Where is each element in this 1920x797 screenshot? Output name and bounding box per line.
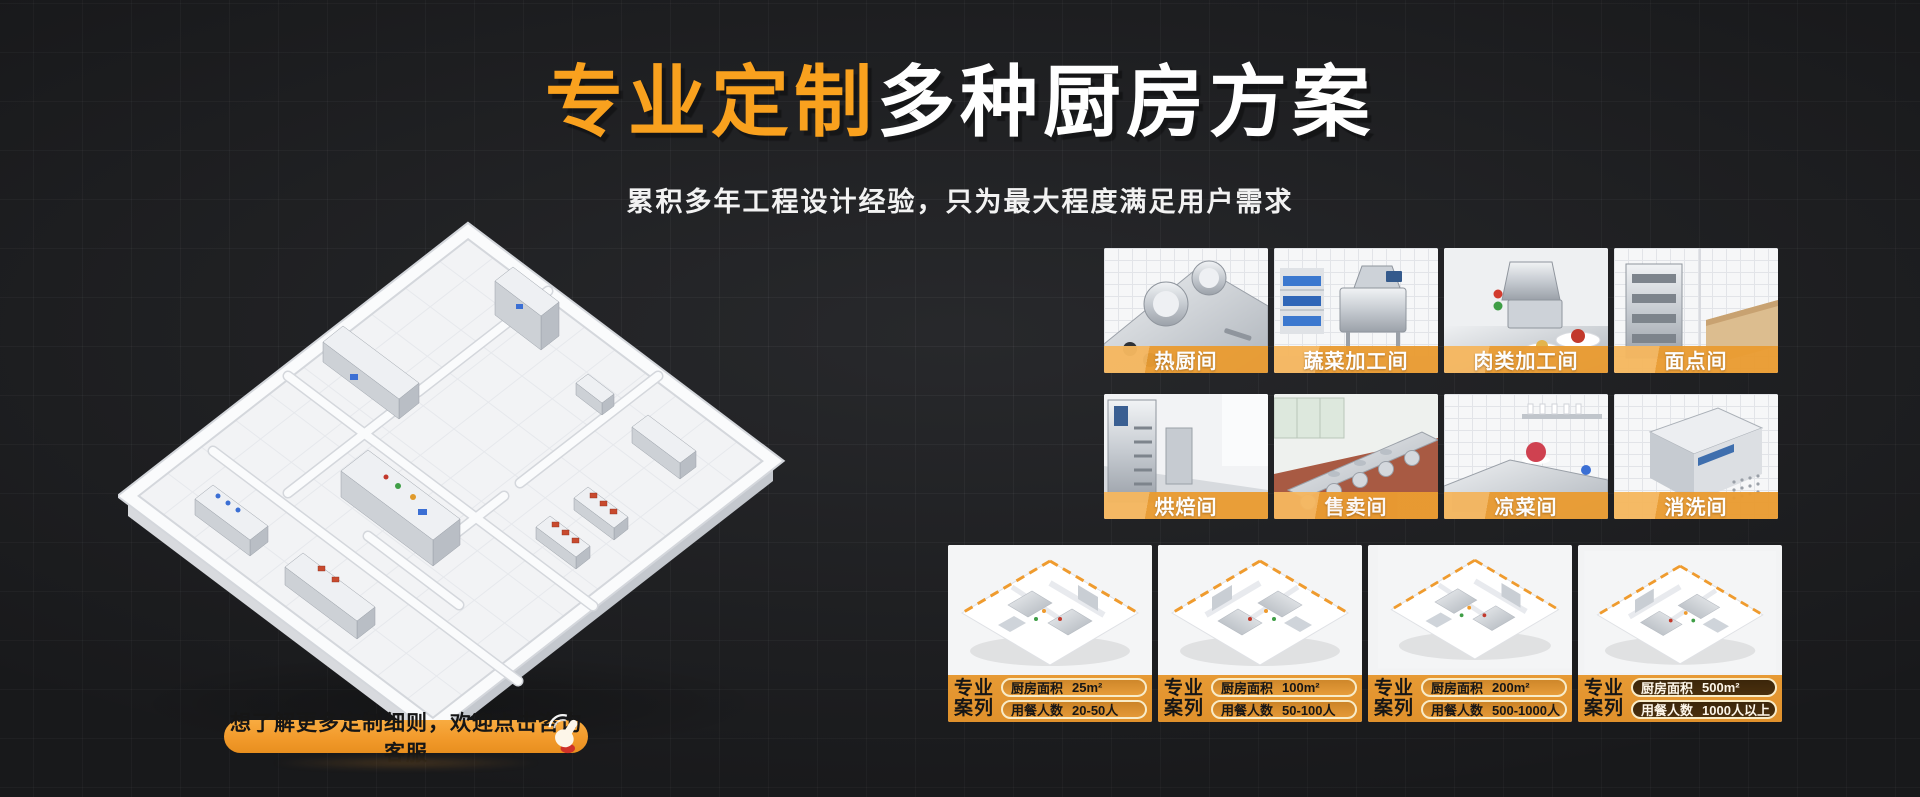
gallery-tile-label: 热厨间: [1104, 346, 1268, 373]
case-strip: 专业案列 厨房面积100m² 用餐人数50-100人: [1158, 675, 1362, 722]
case-area-pill: 厨房面积100m²: [1211, 678, 1357, 697]
case-badge: 专业案列: [954, 679, 994, 719]
click-hand-icon: [540, 710, 586, 756]
case-kitchen-render: [948, 545, 1152, 675]
case-strip: 专业案列 厨房面积200m² 用餐人数500-1000人: [1368, 675, 1572, 722]
case-badge: 专业案列: [1164, 679, 1204, 719]
page-title-rest: 多种厨房方案: [877, 58, 1375, 146]
case-diners-pill: 用餐人数500-1000人: [1421, 700, 1567, 719]
gallery-tile-label: 售卖间: [1274, 492, 1438, 519]
case-cards: 专业案列 厨房面积25m² 用餐人数20-50人 专业案列 厨房面积100m² …: [948, 545, 1782, 722]
case-diners-pill: 用餐人数50-100人: [1211, 700, 1357, 719]
gallery-tile-hot-kitchen[interactable]: 热厨间: [1104, 248, 1268, 373]
gallery-tile-label: 蔬菜加工间: [1274, 346, 1438, 373]
gallery-tile-sales-room[interactable]: 售卖间: [1274, 394, 1438, 519]
case-diners-pill: 用餐人数20-50人: [1001, 700, 1147, 719]
room-gallery: 热厨间 蔬菜加工间: [1104, 248, 1778, 519]
gallery-tile-dishwashing-room[interactable]: 消洗间: [1614, 394, 1778, 519]
case-area-pill: 厨房面积25m²: [1001, 678, 1147, 697]
case-card-200[interactable]: 专业案列 厨房面积200m² 用餐人数500-1000人: [1368, 545, 1572, 722]
gallery-tile-label: 面点间: [1614, 346, 1778, 373]
gallery-tile-baking-room[interactable]: 烘焙间: [1104, 394, 1268, 519]
case-badge: 专业案列: [1374, 679, 1414, 719]
consult-cta-button[interactable]: 想了解更多定制细则，欢迎点击咨询客服: [224, 720, 588, 753]
case-card-500[interactable]: 专业案列 厨房面积500m² 用餐人数1000人以上: [1578, 545, 1782, 722]
gallery-tile-label: 凉菜间: [1444, 492, 1608, 519]
case-card-25[interactable]: 专业案列 厨房面积25m² 用餐人数20-50人: [948, 545, 1152, 722]
page-title: 专业定制多种厨房方案: [0, 40, 1920, 152]
case-strip: 专业案列 厨房面积500m² 用餐人数1000人以上: [1578, 675, 1782, 722]
case-diners-pill: 用餐人数1000人以上: [1631, 700, 1777, 719]
consult-cta-label: 想了解更多定制细则，欢迎点击咨询客服: [224, 707, 588, 767]
case-area-pill: 厨房面积500m²: [1631, 678, 1777, 697]
gallery-tile-pastry-room[interactable]: 面点间: [1614, 248, 1778, 373]
case-strip: 专业案列 厨房面积25m² 用餐人数20-50人: [948, 675, 1152, 722]
case-kitchen-render: [1368, 545, 1572, 675]
case-card-100[interactable]: 专业案列 厨房面积100m² 用餐人数50-100人: [1158, 545, 1362, 722]
case-badge: 专业案列: [1584, 679, 1624, 719]
page-title-highlight: 专业定制: [545, 58, 877, 146]
gallery-tile-vegetable-processing[interactable]: 蔬菜加工间: [1274, 248, 1438, 373]
case-kitchen-render: [1578, 545, 1782, 675]
case-area-pill: 厨房面积200m²: [1421, 678, 1567, 697]
gallery-tile-meat-processing[interactable]: 肉类加工间: [1444, 248, 1608, 373]
hero-banner: 专业定制多种厨房方案 累积多年工程设计经验，只为最大程度满足用户需求: [0, 0, 1920, 797]
case-kitchen-render: [1158, 545, 1362, 675]
gallery-tile-label: 烘焙间: [1104, 492, 1268, 519]
gallery-tile-label: 消洗间: [1614, 492, 1778, 519]
gallery-tile-cold-dish-room[interactable]: 凉菜间: [1444, 394, 1608, 519]
kitchen-floorplan-illustration: [118, 206, 798, 756]
gallery-tile-label: 肉类加工间: [1444, 346, 1608, 373]
